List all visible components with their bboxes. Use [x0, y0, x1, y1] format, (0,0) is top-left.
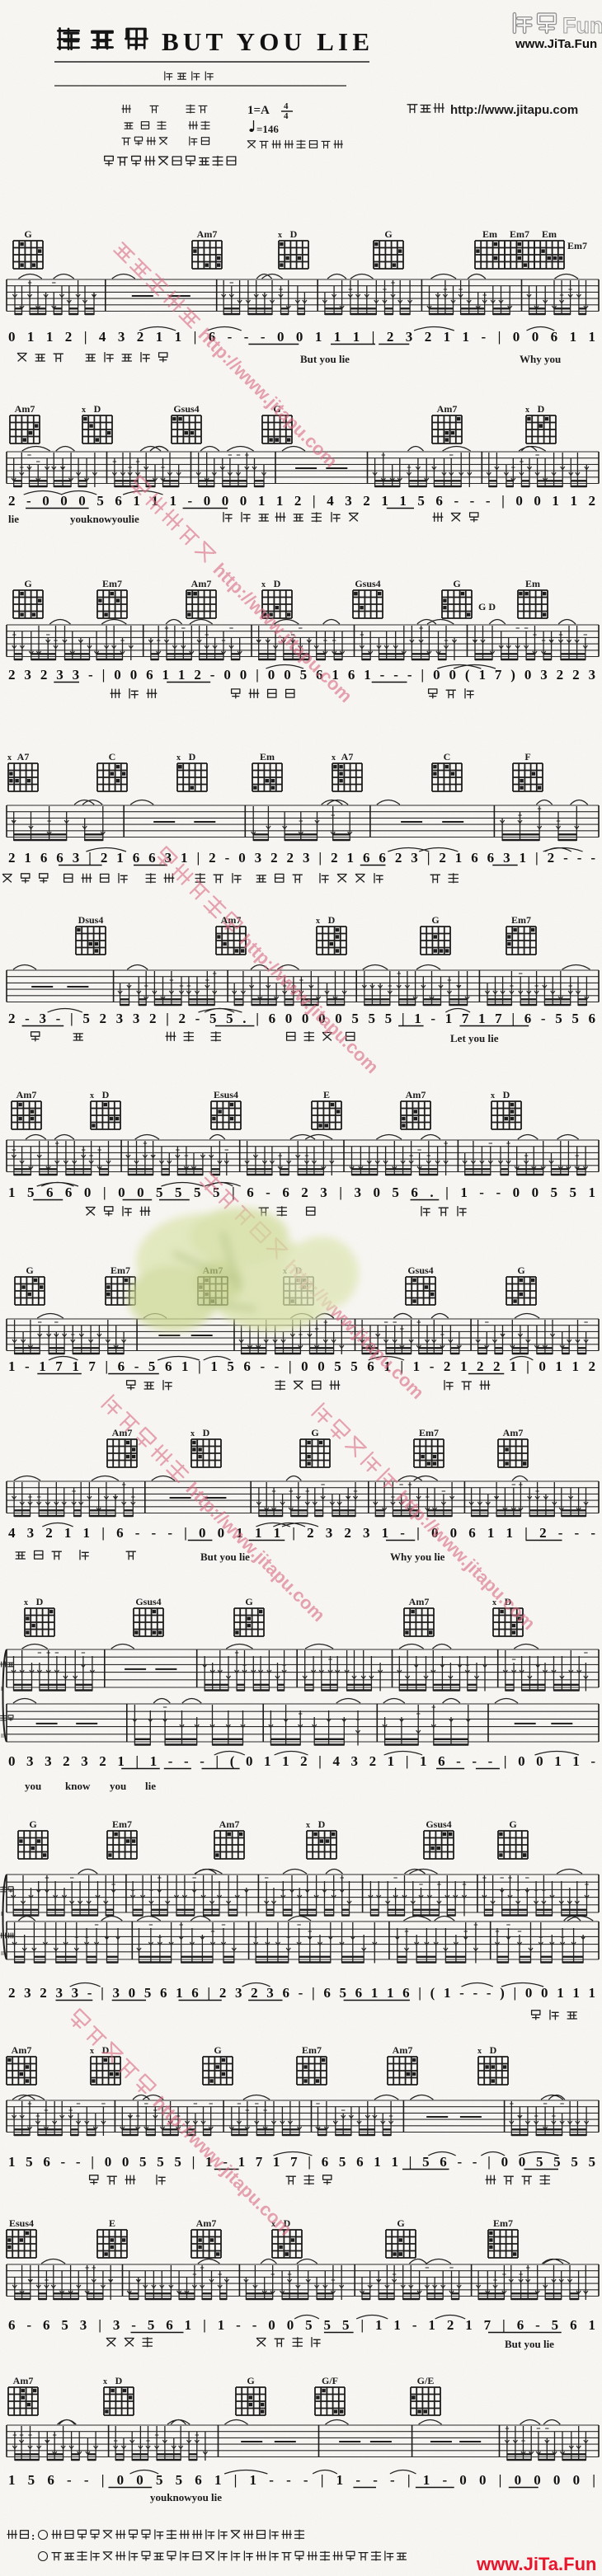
svg-text:G: G [311, 1427, 318, 1438]
svg-text:D: D [318, 1818, 326, 1830]
svg-text:II: II [1, 1734, 4, 1739]
svg-text:Em: Em [525, 578, 540, 589]
svg-text:D: D [538, 403, 545, 415]
svg-text:x: x [316, 917, 320, 926]
svg-text:4: 4 [284, 111, 289, 121]
svg-text:Am7: Am7 [15, 403, 35, 415]
svg-text:D: D [102, 2044, 110, 2056]
svg-text:x: x [491, 1091, 495, 1100]
svg-text:D: D [503, 1089, 510, 1100]
svg-text:x: x [190, 1429, 195, 1438]
svg-text:G: G [509, 1818, 516, 1830]
svg-text:x: x [477, 2047, 482, 2056]
svg-text:2 - 3 - | 5 2 3 3 2 | 2 - 5 5: 2 - 3 - | 5 2 3 3 2 | 2 - 5 5 . | 6 0 0 … [8, 1011, 595, 1026]
svg-text:Gsus4: Gsus4 [426, 1818, 451, 1830]
svg-text:G: G [431, 914, 439, 926]
svg-text:4: 4 [284, 101, 289, 111]
svg-text:D: D [490, 2044, 497, 2056]
svg-text:Am7: Am7 [503, 1427, 524, 1438]
svg-text:2 3 2 3 3 - | 3 0 5 6 1 6 | 2: 2 3 2 3 3 - | 3 0 5 6 1 6 | 2 3 2 3 6 - … [8, 1985, 595, 2001]
svg-text:Why you: Why you [520, 353, 561, 365]
svg-text:Am7: Am7 [191, 578, 212, 589]
svg-text:www.JiTa.Fun: www.JiTa.Fun [476, 2554, 596, 2574]
svg-text:Em7: Em7 [112, 1818, 132, 1830]
svg-text:Gsus4: Gsus4 [355, 578, 380, 589]
svg-text:E: E [109, 2217, 115, 2229]
svg-text:C: C [444, 751, 451, 762]
svg-text:II: II [1, 1951, 4, 1957]
svg-text:Em7: Em7 [419, 1427, 439, 1438]
svg-text:2 3 2 3 3 - | 0 0 6 1 1 2 - 0: 2 3 2 3 3 - | 0 0 6 1 1 2 - 0 0 | 0 0 5 … [8, 667, 595, 683]
svg-text:Am7: Am7 [196, 2217, 217, 2229]
svg-text:Gsus4: Gsus4 [135, 1596, 161, 1607]
svg-text:www.JiTa.Fun: www.JiTa.Fun [515, 37, 597, 51]
svg-text:G: G [384, 228, 392, 240]
svg-text:BUT YOU LIE: BUT YOU LIE [162, 27, 369, 56]
svg-text:I: I [1, 1687, 2, 1692]
svg-text:Em7: Em7 [567, 240, 587, 251]
svg-text:Em: Em [482, 228, 497, 240]
svg-text:Why you lie: Why you lie [390, 1551, 445, 1563]
svg-text:Am7: Am7 [12, 2044, 32, 2056]
svg-text:Em7: Em7 [493, 2217, 513, 2229]
svg-text:Am7: Am7 [437, 403, 458, 415]
svg-text:1 5 6 6 0 | 0 0 5 5 5 5 | 6 -: 1 5 6 6 0 | 0 0 5 5 5 5 | 6 - 6 2 3 | 3 … [8, 1185, 595, 1200]
svg-text:x: x [24, 1598, 28, 1607]
svg-text:E: E [323, 1089, 330, 1100]
svg-text:G: G [214, 2044, 221, 2056]
svg-text:G D: G D [478, 601, 496, 612]
svg-text:C: C [109, 751, 116, 762]
svg-text:F: F [524, 751, 530, 762]
svg-text:x: x [103, 2377, 107, 2386]
svg-text:Am7: Am7 [13, 2375, 34, 2386]
svg-text:x: x [90, 1091, 94, 1100]
svg-text:=146: =146 [256, 123, 279, 135]
svg-text:Em7: Em7 [510, 228, 529, 240]
svg-text:Em: Em [542, 228, 557, 240]
svg-text:Let you lie: Let you lie [450, 1032, 499, 1044]
svg-text:G: G [397, 2217, 404, 2229]
svg-text:Am7: Am7 [197, 228, 218, 240]
svg-text:D: D [203, 1427, 210, 1438]
svg-text:G: G [26, 1265, 33, 1276]
svg-text:youknowyou lie: youknowyou lie [150, 2491, 222, 2503]
svg-text:G/F: G/F [322, 2375, 338, 2386]
svg-text:Am7: Am7 [219, 1818, 240, 1830]
svg-text:1=A: 1=A [247, 104, 270, 117]
svg-text:D: D [328, 914, 336, 926]
svg-text:Am7: Am7 [16, 1089, 37, 1100]
svg-text:x: x [278, 231, 282, 240]
svg-text:Em7: Em7 [111, 1265, 130, 1276]
svg-text:D: D [189, 751, 196, 762]
svg-text:Em7: Em7 [102, 578, 122, 589]
svg-text::: : [31, 2530, 35, 2542]
svg-text:http://www.jitapu.com: http://www.jitapu.com [450, 103, 578, 117]
svg-text:Dsus4: Dsus4 [78, 914, 104, 926]
svg-text:G: G [24, 578, 31, 589]
svg-text:x: x [306, 1821, 310, 1830]
svg-text:Em7: Em7 [511, 914, 531, 926]
svg-text:youknowyoulie: youknowyoulie [70, 513, 139, 525]
svg-text:Am7: Am7 [409, 1596, 430, 1607]
svg-text:G: G [29, 1818, 36, 1830]
svg-text:G: G [453, 578, 460, 589]
svg-text:Em: Em [260, 751, 275, 762]
svg-text:Am7: Am7 [393, 2044, 413, 2056]
svg-text:4 3 2 1 1 | 6 - - - | 0 0 1 1: 4 3 2 1 1 | 6 - - - | 0 0 1 1 1 | 2 3 2 … [8, 1525, 595, 1541]
svg-text:Gsus4: Gsus4 [173, 403, 199, 415]
svg-text:D: D [94, 403, 101, 415]
svg-text:G: G [517, 1265, 524, 1276]
svg-text:you: you [110, 1780, 126, 1792]
svg-text:G: G [247, 2375, 254, 2386]
svg-text:A7: A7 [17, 751, 30, 762]
svg-text:x: x [90, 2047, 94, 2056]
svg-text:A7: A7 [341, 751, 354, 762]
svg-text:D: D [102, 1089, 110, 1100]
svg-text:know: know [65, 1780, 91, 1792]
svg-text:G: G [245, 1596, 252, 1607]
svg-text:I: I [1, 1912, 2, 1917]
svg-text:Am7: Am7 [406, 1089, 426, 1100]
svg-text:D: D [115, 2375, 123, 2386]
svg-text:x: x [261, 580, 266, 589]
svg-text:x: x [332, 753, 336, 762]
svg-text:D: D [290, 228, 298, 240]
svg-text:lie: lie [145, 1780, 156, 1792]
svg-text:G: G [24, 228, 31, 240]
svg-text:x: x [525, 406, 529, 415]
svg-text:x: x [82, 406, 86, 415]
svg-text:G/E: G/E [417, 2375, 435, 2386]
svg-text:Esus4: Esus4 [9, 2217, 34, 2229]
svg-text:x: x [7, 753, 12, 762]
svg-text:Gsus4: Gsus4 [407, 1265, 433, 1276]
svg-text:But you lie: But you lie [505, 2338, 554, 2350]
svg-text:2 1 6 6 3 | 2 1 6 6 3 1 | 2 -: 2 1 6 6 3 | 2 1 6 6 3 1 | 2 - 0 3 2 2 3 … [8, 850, 595, 866]
svg-text:Esus4: Esus4 [214, 1089, 238, 1100]
svg-text:Fun: Fun [562, 13, 602, 38]
svg-text:lie: lie [8, 513, 19, 525]
svg-text:x: x [176, 753, 181, 762]
svg-text:you: you [25, 1780, 41, 1792]
svg-text:But you lie: But you lie [300, 353, 350, 365]
svg-text:D: D [36, 1596, 44, 1607]
svg-text:Em7: Em7 [302, 2044, 322, 2056]
svg-text:D: D [274, 578, 281, 589]
